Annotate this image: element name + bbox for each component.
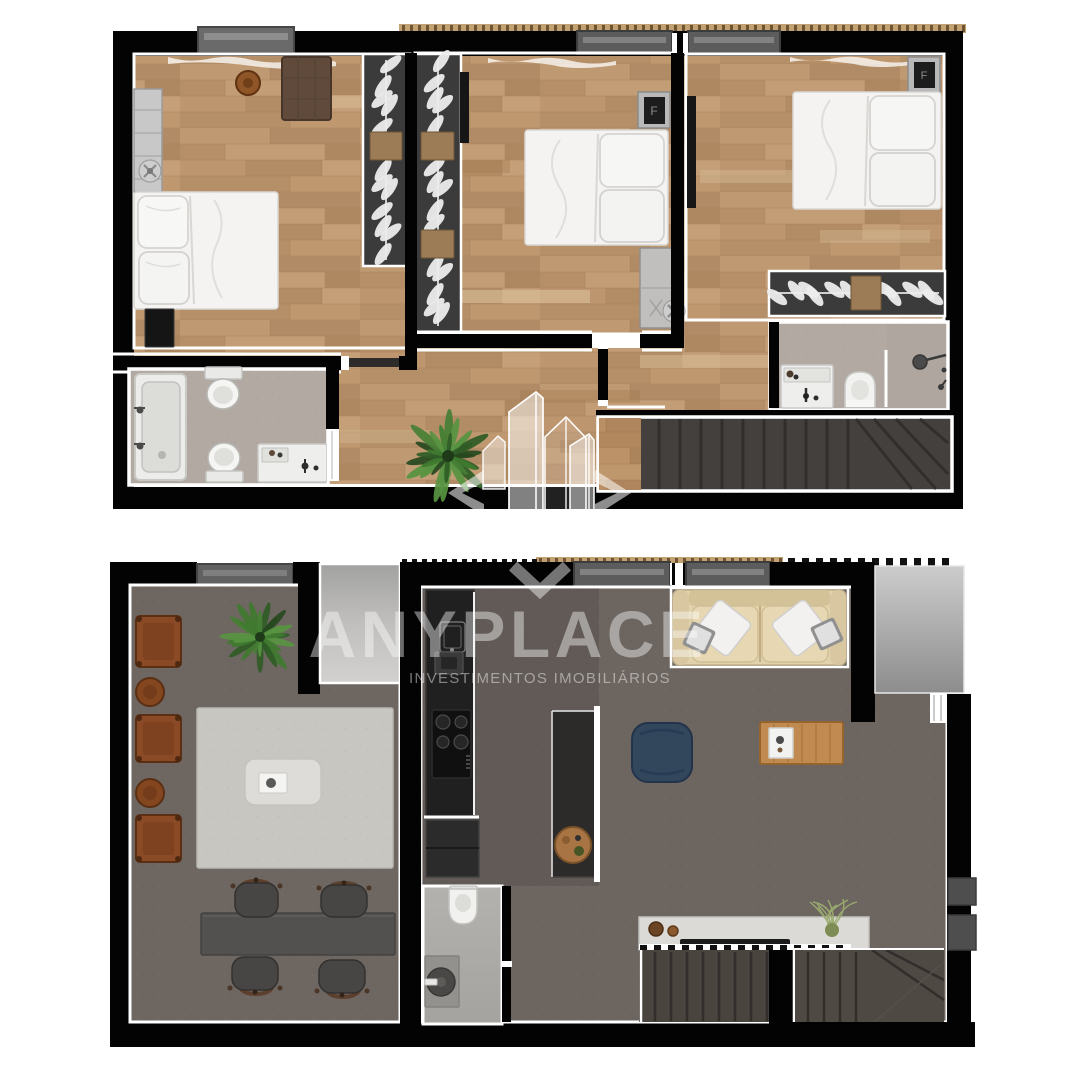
svg-text:F: F [921,70,928,82]
svg-text:F: F [650,104,657,118]
svg-text:INVESTIMENTOS IMOBILIÁRIOS: INVESTIMENTOS IMOBILIÁRIOS [409,670,671,687]
svg-text:ANYPLACE: ANYPLACE [308,597,707,671]
